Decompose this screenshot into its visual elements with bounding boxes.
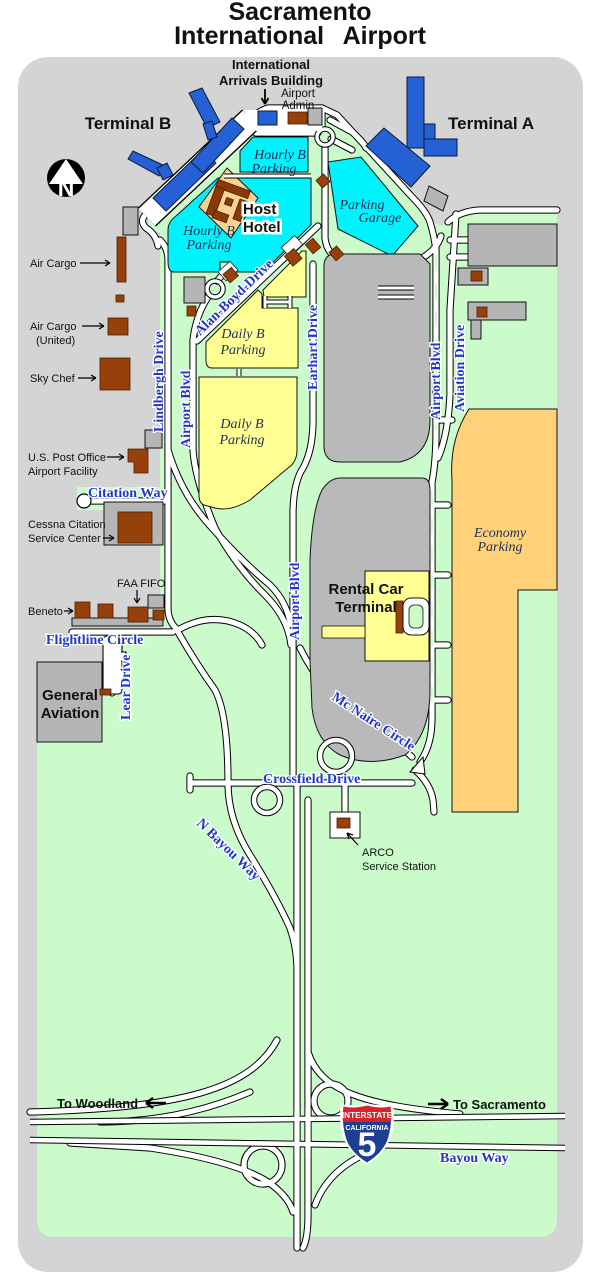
svg-text:FAA FIFO: FAA FIFO bbox=[117, 578, 166, 590]
svg-text:Daily B: Daily B bbox=[220, 327, 265, 342]
svg-text:INTERSTATE: INTERSTATE bbox=[342, 1111, 393, 1120]
svg-text:5: 5 bbox=[358, 1126, 377, 1164]
svg-text:Terminal B: Terminal B bbox=[85, 114, 172, 133]
svg-text:International: International bbox=[232, 57, 310, 72]
svg-text:Hotel: Hotel bbox=[243, 219, 281, 236]
svg-text:To Woodland: To Woodland bbox=[57, 1096, 138, 1111]
svg-text:Parking: Parking bbox=[250, 162, 296, 177]
svg-text:Host: Host bbox=[243, 201, 276, 218]
svg-text:Earhart Drive: Earhart Drive bbox=[306, 305, 321, 390]
svg-text:Crossfield Drive: Crossfield Drive bbox=[263, 772, 360, 787]
svg-text:Lindbergh Drive: Lindbergh Drive bbox=[152, 331, 167, 432]
svg-text:Hourly B: Hourly B bbox=[182, 224, 235, 239]
svg-text:Service Center: Service Center bbox=[28, 533, 101, 545]
svg-text:Terminal: Terminal bbox=[335, 599, 396, 616]
svg-text:Garage: Garage bbox=[359, 211, 402, 226]
svg-text:Aviation: Aviation bbox=[41, 705, 100, 722]
svg-text:Hourly B: Hourly B bbox=[253, 148, 306, 163]
svg-text:U.S. Post Office: U.S. Post Office bbox=[28, 452, 106, 464]
svg-text:Parking: Parking bbox=[476, 540, 522, 555]
svg-text:International Airport: International Airport bbox=[174, 22, 427, 50]
svg-text:Airport Blvd: Airport Blvd bbox=[288, 562, 303, 640]
svg-text:Bayou Way: Bayou Way bbox=[440, 1151, 509, 1166]
svg-text:Parking: Parking bbox=[219, 343, 265, 358]
svg-text:Parking: Parking bbox=[218, 433, 264, 448]
svg-text:Terminal A: Terminal A bbox=[448, 114, 534, 133]
svg-text:Aviation Drive: Aviation Drive bbox=[453, 325, 468, 412]
svg-text:N: N bbox=[58, 175, 75, 201]
svg-text:Rental Car: Rental Car bbox=[328, 581, 403, 598]
svg-text:Sky Chef: Sky Chef bbox=[30, 373, 76, 385]
svg-text:Parking: Parking bbox=[185, 238, 231, 253]
svg-text:(United): (United) bbox=[36, 335, 75, 347]
svg-text:To Sacramento: To Sacramento bbox=[453, 1097, 546, 1112]
svg-text:Economy: Economy bbox=[473, 526, 527, 541]
svg-text:Airport: Airport bbox=[281, 88, 316, 100]
svg-text:Airport Facility: Airport Facility bbox=[28, 466, 98, 478]
svg-text:Daily B: Daily B bbox=[219, 417, 264, 432]
svg-text:Air Cargo: Air Cargo bbox=[30, 258, 76, 270]
svg-text:Cessna Citation: Cessna Citation bbox=[28, 519, 106, 531]
svg-text:ARCO: ARCO bbox=[362, 847, 394, 859]
svg-text:Air Cargo: Air Cargo bbox=[30, 321, 76, 333]
svg-text:Admin: Admin bbox=[282, 100, 315, 112]
svg-text:Flightline Circle: Flightline Circle bbox=[46, 633, 143, 648]
svg-text:Service Station: Service Station bbox=[362, 861, 436, 873]
svg-text:Airport Blvd: Airport Blvd bbox=[179, 370, 194, 448]
svg-text:Beneto: Beneto bbox=[28, 606, 63, 618]
svg-text:Arrivals Building: Arrivals Building bbox=[219, 73, 323, 88]
svg-text:General: General bbox=[42, 687, 98, 704]
svg-text:Lear Drive: Lear Drive bbox=[119, 655, 134, 720]
svg-text:Citation Way: Citation Way bbox=[88, 486, 167, 501]
svg-text:Airport Blvd: Airport Blvd bbox=[429, 342, 444, 420]
